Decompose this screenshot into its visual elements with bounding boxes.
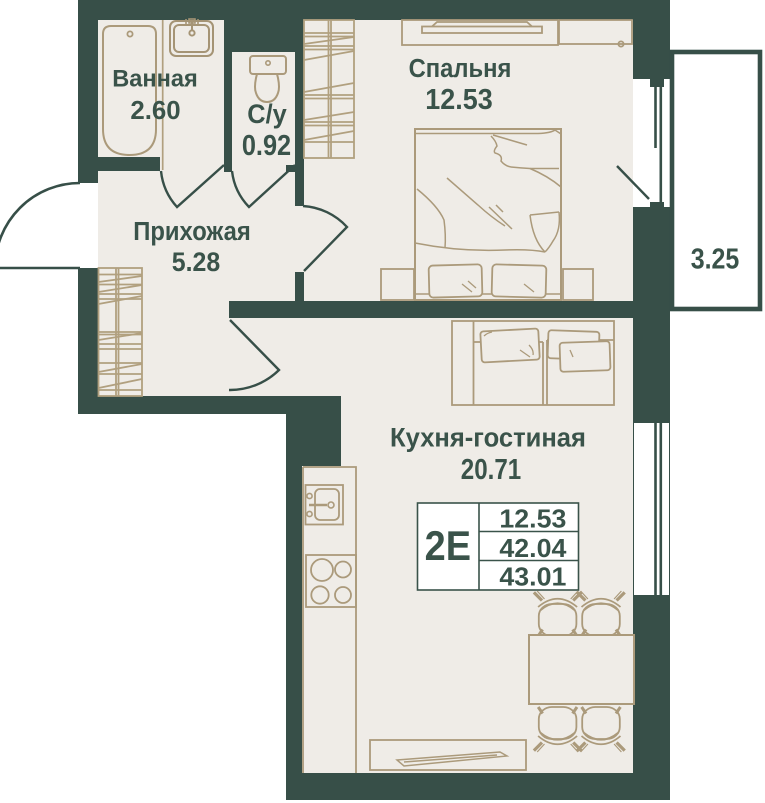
svg-text:Спальня: Спальня <box>409 55 512 83</box>
svg-text:С/у: С/у <box>247 99 287 129</box>
svg-text:2E: 2E <box>425 522 471 569</box>
svg-text:Кухня-гостиная: Кухня-гостиная <box>390 423 586 453</box>
svg-text:12.53: 12.53 <box>499 505 566 533</box>
svg-text:20.71: 20.71 <box>461 454 521 486</box>
svg-text:Прихожая: Прихожая <box>133 218 251 246</box>
svg-text:12.53: 12.53 <box>425 84 492 116</box>
svg-text:43.01: 43.01 <box>499 564 566 592</box>
svg-text:42.04: 42.04 <box>499 535 567 563</box>
svg-text:0.92: 0.92 <box>242 130 291 162</box>
svg-text:Ванная: Ванная <box>112 66 198 93</box>
svg-text:5.28: 5.28 <box>172 247 220 277</box>
svg-text:2.60: 2.60 <box>130 95 180 125</box>
svg-text:3.25: 3.25 <box>691 244 740 276</box>
